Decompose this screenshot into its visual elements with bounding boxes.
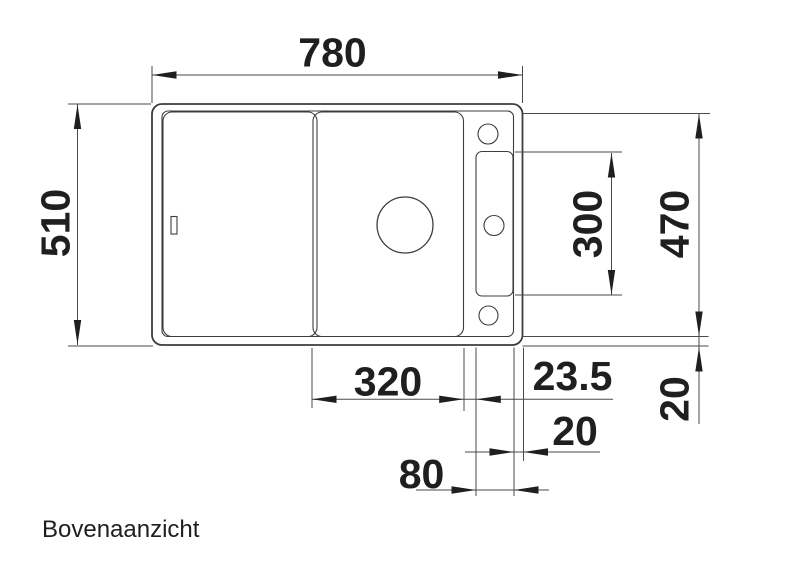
arrow-235-left bbox=[476, 396, 501, 403]
dim-label-gap-235: 23.5 bbox=[533, 353, 613, 399]
dim-label-total-width: 780 bbox=[298, 30, 366, 76]
arrow-470-top bbox=[695, 114, 702, 139]
dimension-arrows-group bbox=[74, 71, 703, 493]
tap-hole-top bbox=[478, 124, 498, 144]
bowl-panel bbox=[313, 112, 464, 337]
sink-outline-group bbox=[152, 104, 523, 345]
arrow-80-right bbox=[514, 486, 539, 493]
arrow-320-left bbox=[312, 396, 337, 403]
drainboard-panel bbox=[163, 112, 317, 337]
technical-drawing-page: 780 510 470 300 20 320 23.5 20 80 Bovena… bbox=[0, 0, 800, 573]
arrow-20h-left bbox=[490, 448, 515, 455]
arrow-780-right bbox=[498, 71, 523, 78]
view-caption: Bovenaanzicht bbox=[42, 516, 200, 543]
sink-top-view-drawing: 780 510 470 300 20 320 23.5 20 80 Bovena… bbox=[0, 0, 800, 573]
sink-outer-edge bbox=[152, 104, 523, 345]
dim-label-rim-20-vertical: 20 bbox=[652, 376, 698, 422]
arrow-300-bottom bbox=[608, 270, 615, 295]
dim-label-ledge-80: 80 bbox=[399, 451, 445, 497]
drain-hole bbox=[377, 197, 433, 253]
arrow-300-top bbox=[608, 153, 615, 178]
arrow-510-bottom bbox=[74, 320, 81, 345]
dim-label-ledge-offset-20: 20 bbox=[552, 408, 598, 454]
tap-ledge-slot bbox=[476, 152, 513, 297]
arrow-470-bottom bbox=[695, 312, 702, 337]
arrow-780-left bbox=[152, 71, 177, 78]
tap-hole-middle bbox=[484, 216, 504, 236]
dimension-lines-group bbox=[68, 66, 710, 496]
sink-rim-inner-edge bbox=[162, 111, 514, 337]
arrow-20v-up bbox=[695, 347, 702, 372]
dim-label-board-320: 320 bbox=[354, 359, 422, 405]
arrow-320-right bbox=[439, 396, 464, 403]
dim-label-ledge-300: 300 bbox=[565, 190, 611, 258]
arrow-80-left bbox=[452, 486, 477, 493]
dimension-text-group: 780 510 470 300 20 320 23.5 20 80 bbox=[33, 30, 698, 498]
tap-hole-bottom bbox=[479, 306, 498, 325]
dim-label-right-470: 470 bbox=[652, 190, 698, 258]
overflow-mark bbox=[171, 217, 177, 235]
arrow-20h-right bbox=[524, 448, 549, 455]
arrow-510-top bbox=[74, 105, 81, 130]
dim-label-total-depth: 510 bbox=[33, 189, 79, 257]
